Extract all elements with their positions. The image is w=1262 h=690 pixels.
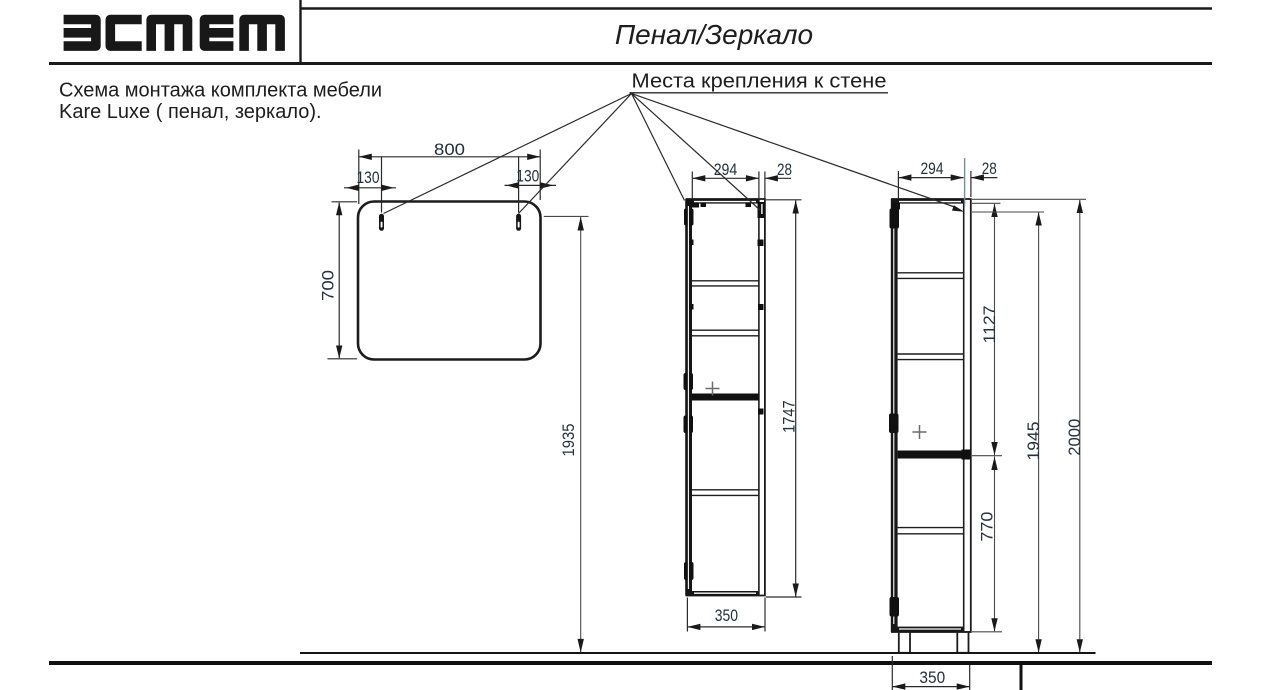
svg-text:Пенал/Зеркало: Пенал/Зеркало (615, 19, 813, 50)
svg-text:Места крепления к стене: Места крепления к стене (632, 70, 887, 93)
svg-text:350: 350 (715, 606, 738, 625)
svg-text:1127: 1127 (980, 306, 999, 344)
svg-text:1935: 1935 (559, 424, 578, 457)
svg-text:130: 130 (357, 168, 380, 187)
svg-text:1945: 1945 (1024, 422, 1043, 461)
svg-text:770: 770 (978, 512, 997, 542)
svg-text:294: 294 (921, 159, 944, 178)
svg-text:28: 28 (777, 160, 792, 179)
svg-text:294: 294 (714, 160, 738, 179)
svg-text:700: 700 (319, 270, 338, 301)
svg-text:1747: 1747 (780, 400, 799, 433)
svg-text:Kare Luxe ( пенал, зеркало).: Kare Luxe ( пенал, зеркало). (59, 101, 322, 123)
svg-text:350: 350 (919, 668, 945, 687)
svg-text:2000: 2000 (1065, 419, 1084, 456)
svg-text:28: 28 (982, 159, 997, 178)
svg-text:800: 800 (434, 140, 465, 159)
svg-text:Схема монтажа комплекта мебели: Схема монтажа комплекта мебели (59, 80, 382, 102)
svg-text:130: 130 (516, 167, 539, 186)
